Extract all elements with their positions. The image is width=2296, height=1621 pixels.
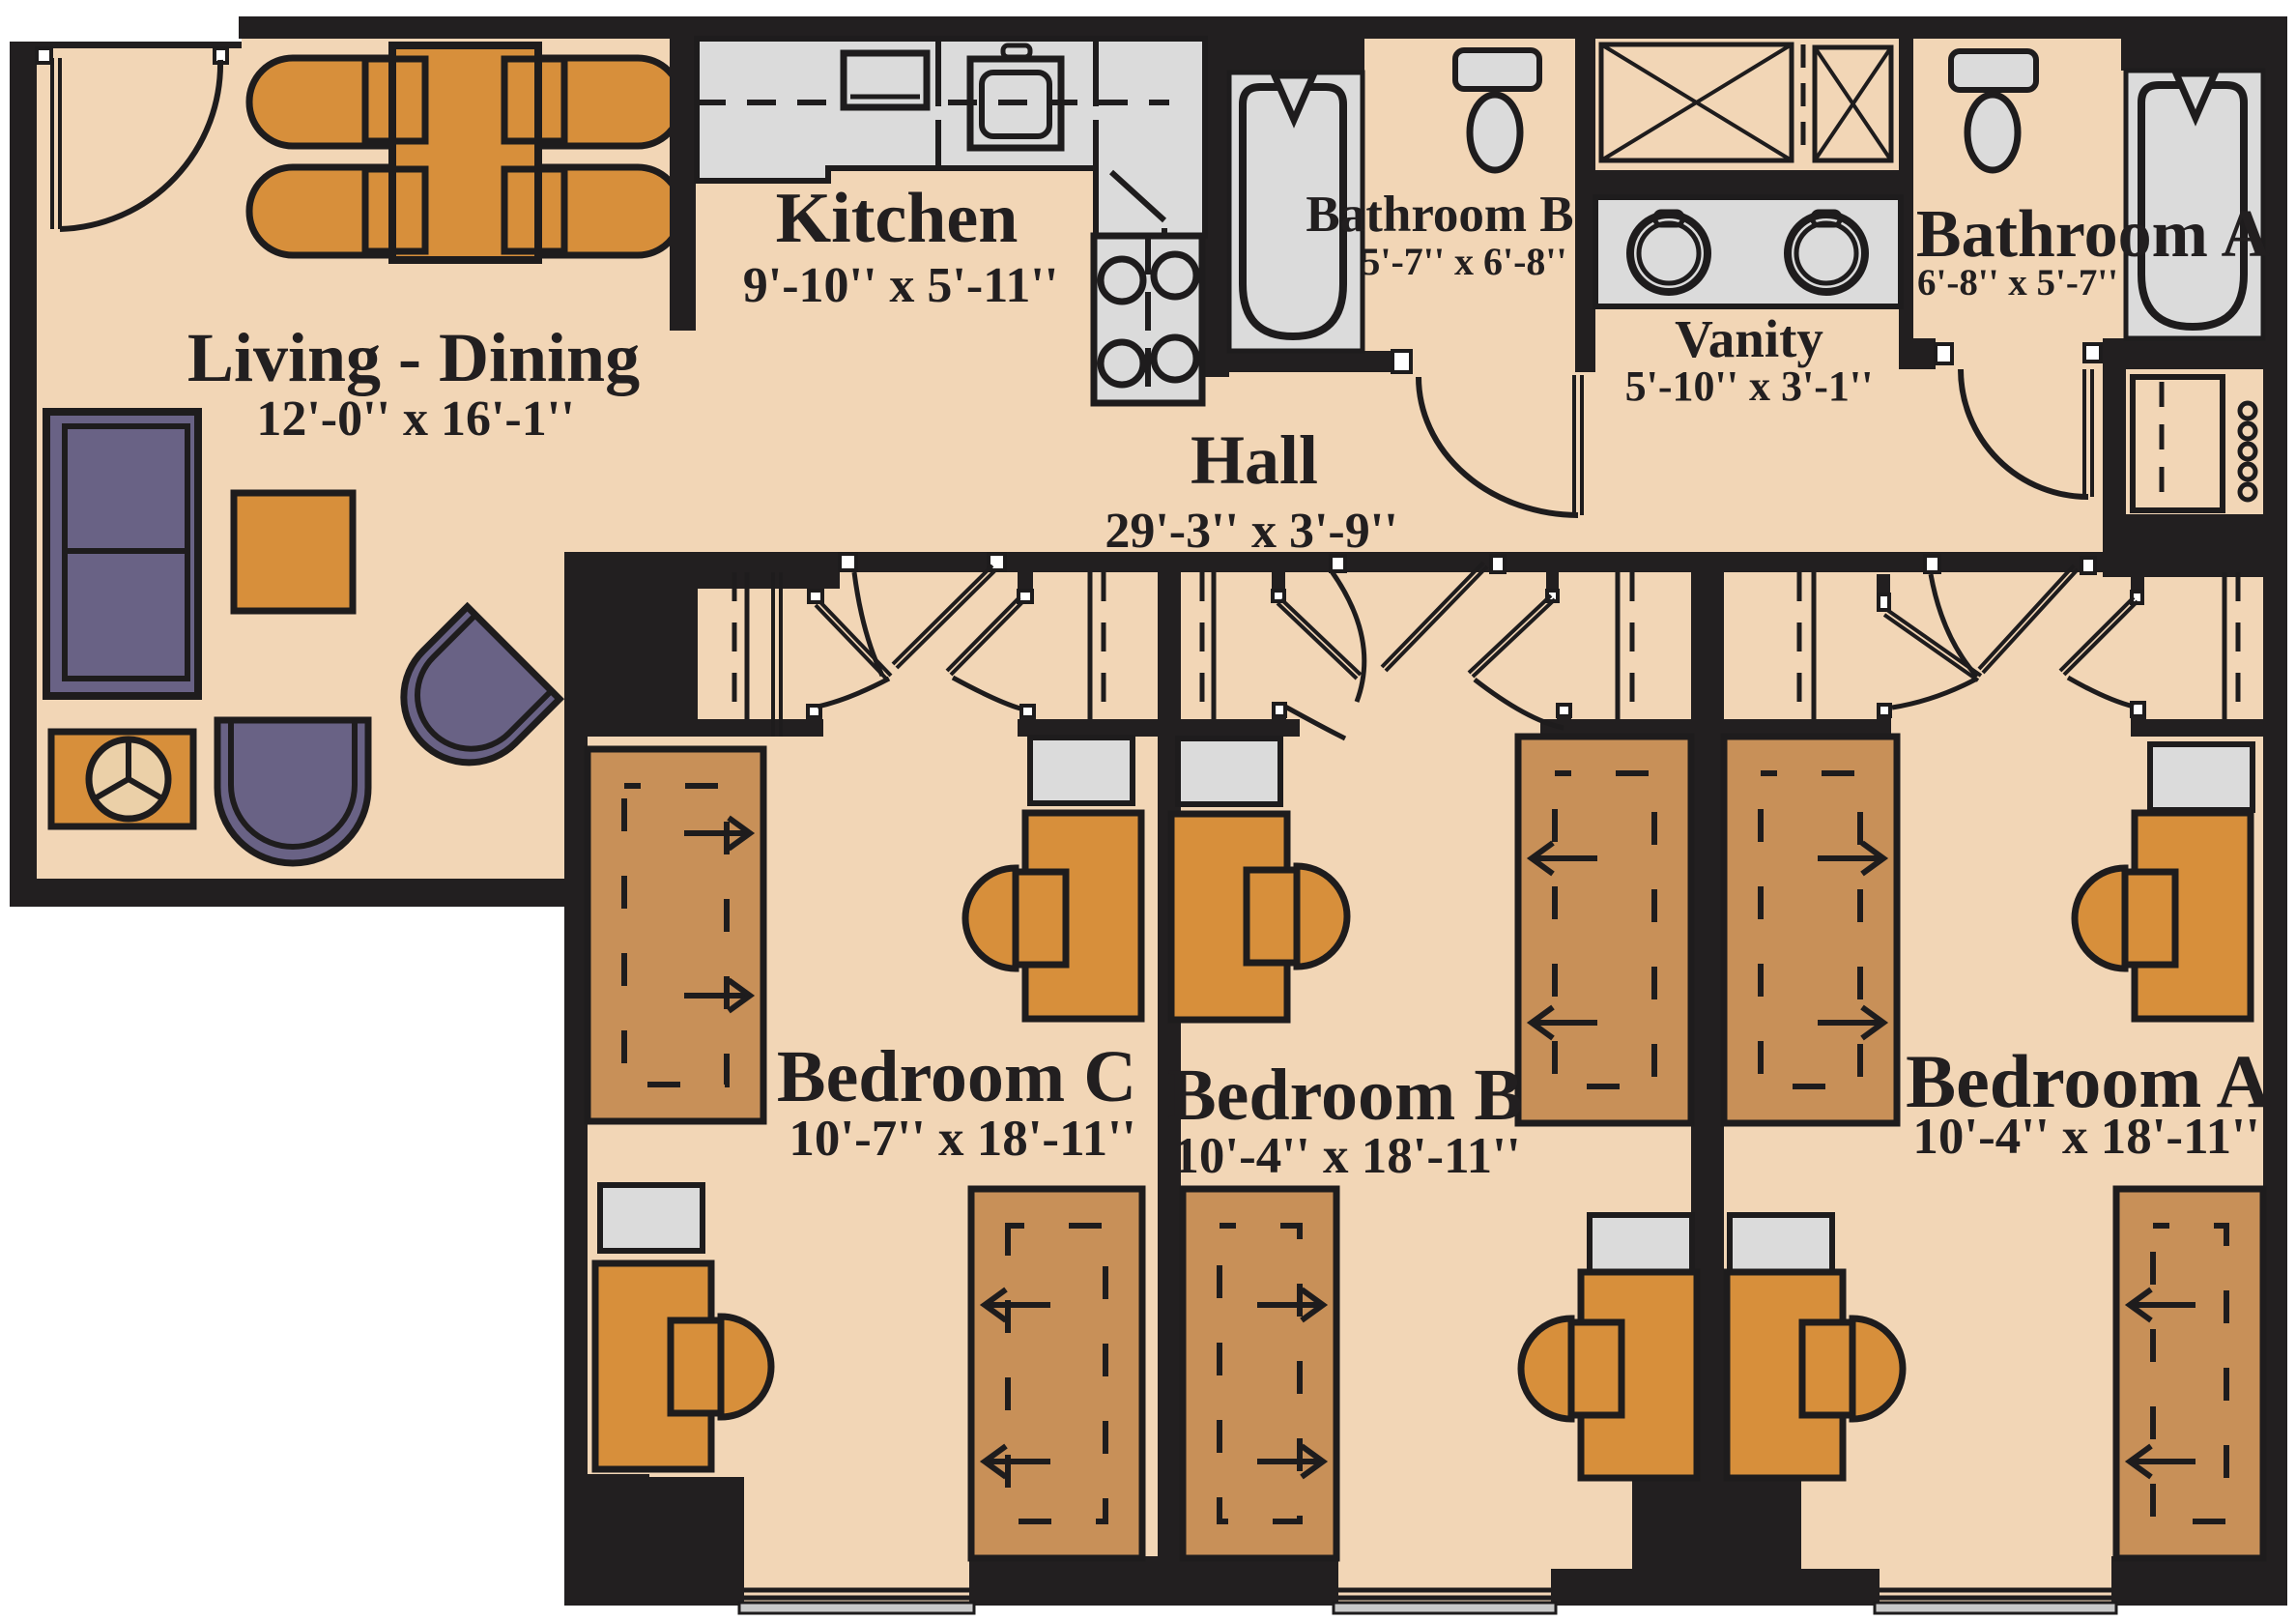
svg-text:29'-3'' x 3'-9'': 29'-3'' x 3'-9'' [1105, 504, 1397, 559]
svg-text:10'-4'' x 18'-11'': 10'-4'' x 18'-11'' [1173, 1128, 1520, 1184]
svg-text:10'-7'' x 18'-11'': 10'-7'' x 18'-11'' [789, 1111, 1135, 1167]
svg-text:Bathroom A: Bathroom A [1916, 197, 2271, 272]
svg-text:Bedroom C: Bedroom C [777, 1036, 1136, 1117]
svg-text:Kitchen: Kitchen [776, 179, 1019, 258]
svg-text:Hall: Hall [1191, 421, 1318, 499]
svg-text:6'-8'' x 5'-7'': 6'-8'' x 5'-7'' [1917, 262, 2118, 304]
svg-text:5'-7'' x 6'-8'': 5'-7'' x 6'-8'' [1361, 240, 1566, 283]
svg-text:12'-0'' x 16'-1'': 12'-0'' x 16'-1'' [256, 391, 574, 447]
svg-text:9'-10'' x 5'-11'': 9'-10'' x 5'-11'' [743, 258, 1058, 313]
svg-text:Bedroom B: Bedroom B [1167, 1055, 1523, 1136]
svg-text:10'-4'' x 18'-11'': 10'-4'' x 18'-11'' [1912, 1109, 2259, 1165]
svg-text:Living - Dining: Living - Dining [187, 319, 640, 396]
svg-text:Vanity: Vanity [1675, 309, 1823, 368]
svg-text:5'-10'' x 3'-1'': 5'-10'' x 3'-1'' [1625, 362, 1874, 410]
svg-text:Bathroom B: Bathroom B [1306, 187, 1573, 243]
